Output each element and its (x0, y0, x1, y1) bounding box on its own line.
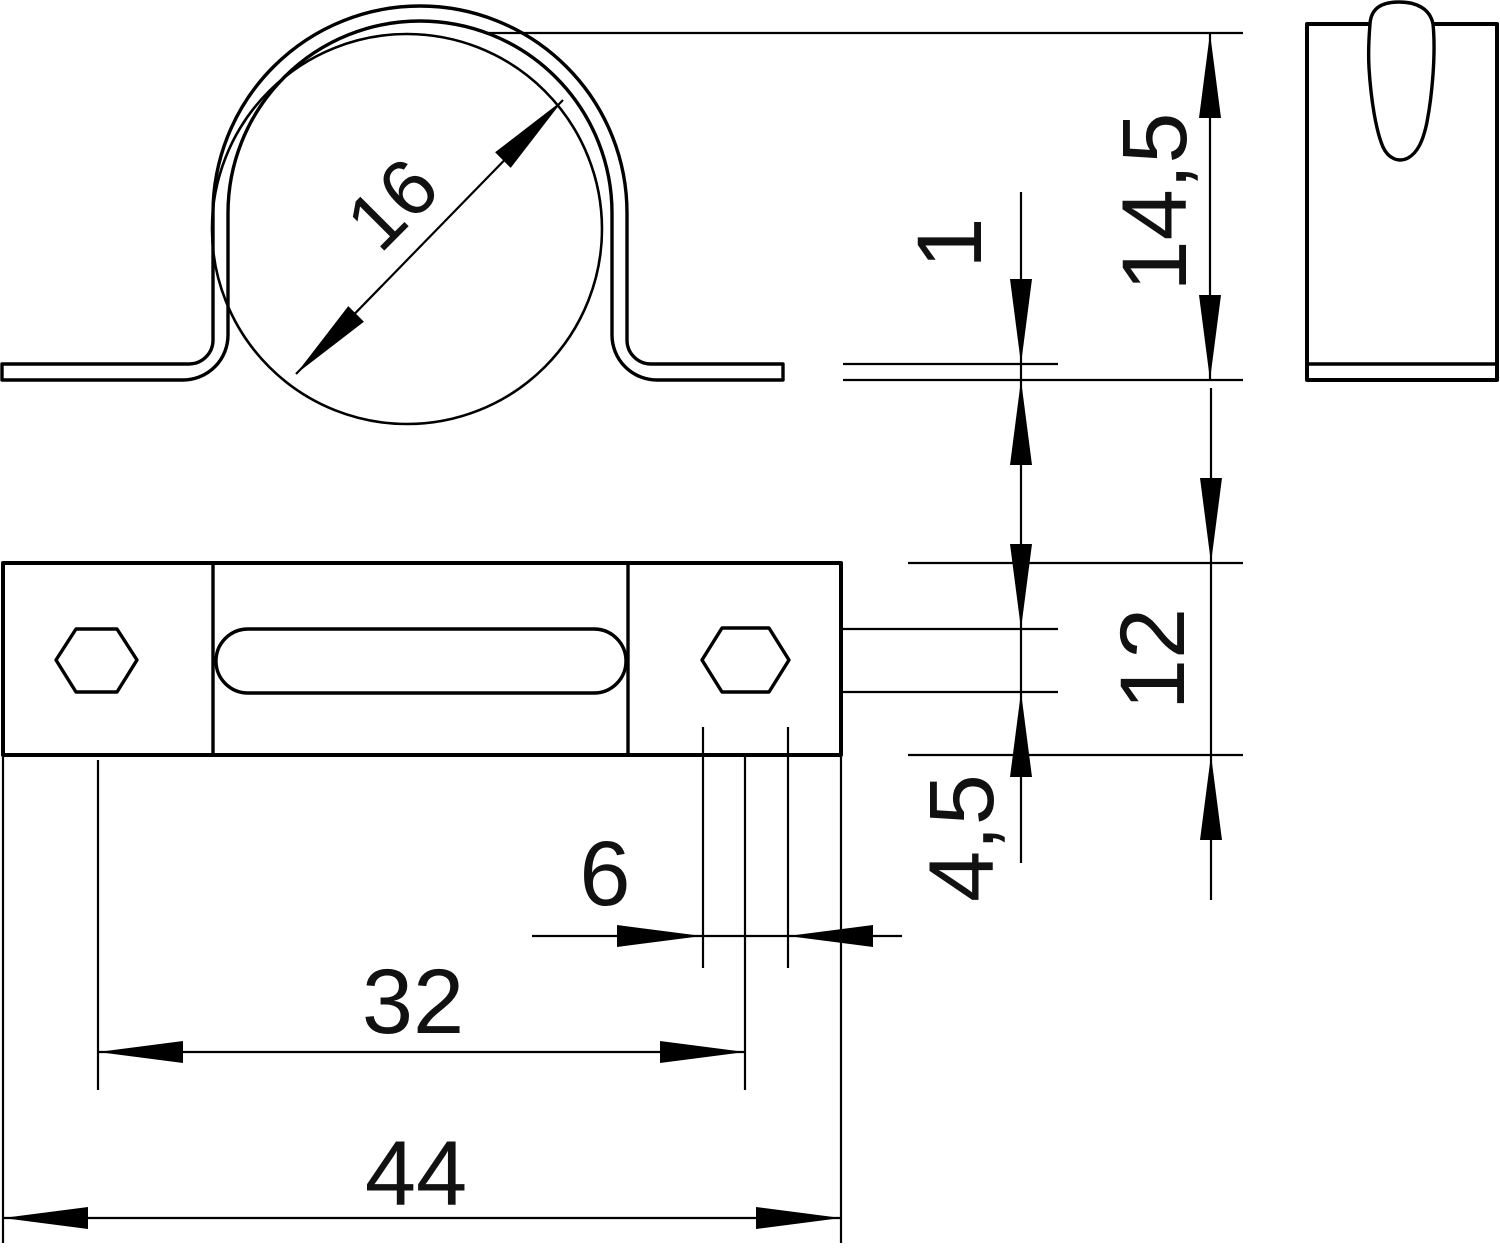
side-view-body (1307, 24, 1497, 380)
center-slot (216, 629, 626, 693)
dimension-label-hole-spacing: 32 (362, 951, 464, 1053)
side-view (1307, 2, 1497, 380)
arrowhead-down-left (296, 306, 364, 374)
hex-hole-right (702, 628, 789, 692)
dimension-label-overall-height: 14,5 (1104, 112, 1206, 291)
dimension-hole-width: 6 (532, 823, 902, 947)
dimension-label-hole-width: 6 (579, 823, 630, 925)
extension-lines (3, 33, 1243, 1243)
base-plate-outline (3, 563, 841, 755)
dimension-label-overall-length: 44 (365, 1123, 467, 1225)
arrowhead-left (3, 1207, 88, 1229)
arrowhead-left (788, 925, 873, 947)
arrowhead-down (1010, 544, 1032, 629)
arrowhead-down (1200, 478, 1222, 563)
dimension-hole-spacing: 32 (98, 951, 745, 1063)
dimension-clamp-width: 12 (1102, 388, 1222, 900)
arrowhead-up-right (495, 100, 563, 168)
arrowhead-down (1010, 279, 1032, 364)
arrowhead-up (1199, 33, 1221, 118)
dimension-label-material-thickness: 1 (899, 217, 1001, 268)
technical-drawing: 16 1 14,5 12 4,5 6 32 (0, 0, 1500, 1255)
dimension-label-pipe-diameter: 16 (329, 141, 455, 267)
arrowhead-up (1010, 692, 1032, 777)
arrowhead-up (1010, 380, 1032, 465)
arrowhead-right (660, 1041, 745, 1063)
dimension-material-thickness: 1 (899, 192, 1032, 545)
arrowhead-up (1200, 755, 1222, 840)
arrowhead-right (617, 925, 702, 947)
drawing-svg: 16 1 14,5 12 4,5 6 32 (0, 0, 1500, 1255)
arrowhead-left (98, 1041, 183, 1063)
dimension-overall-height: 14,5 (1104, 33, 1221, 380)
arrowhead-down (1199, 295, 1221, 380)
hex-hole-left (56, 629, 137, 692)
side-view-slot (1369, 2, 1434, 160)
dimension-label-clamp-width: 12 (1102, 608, 1204, 710)
arrowhead-right (756, 1207, 841, 1229)
dimension-overall-length: 44 (3, 1123, 841, 1229)
dimension-pipe-diameter: 16 (296, 100, 563, 374)
bottom-view (3, 563, 841, 755)
dimension-label-hole-height: 4,5 (911, 774, 1013, 902)
dimension-hole-height: 4,5 (911, 544, 1032, 902)
